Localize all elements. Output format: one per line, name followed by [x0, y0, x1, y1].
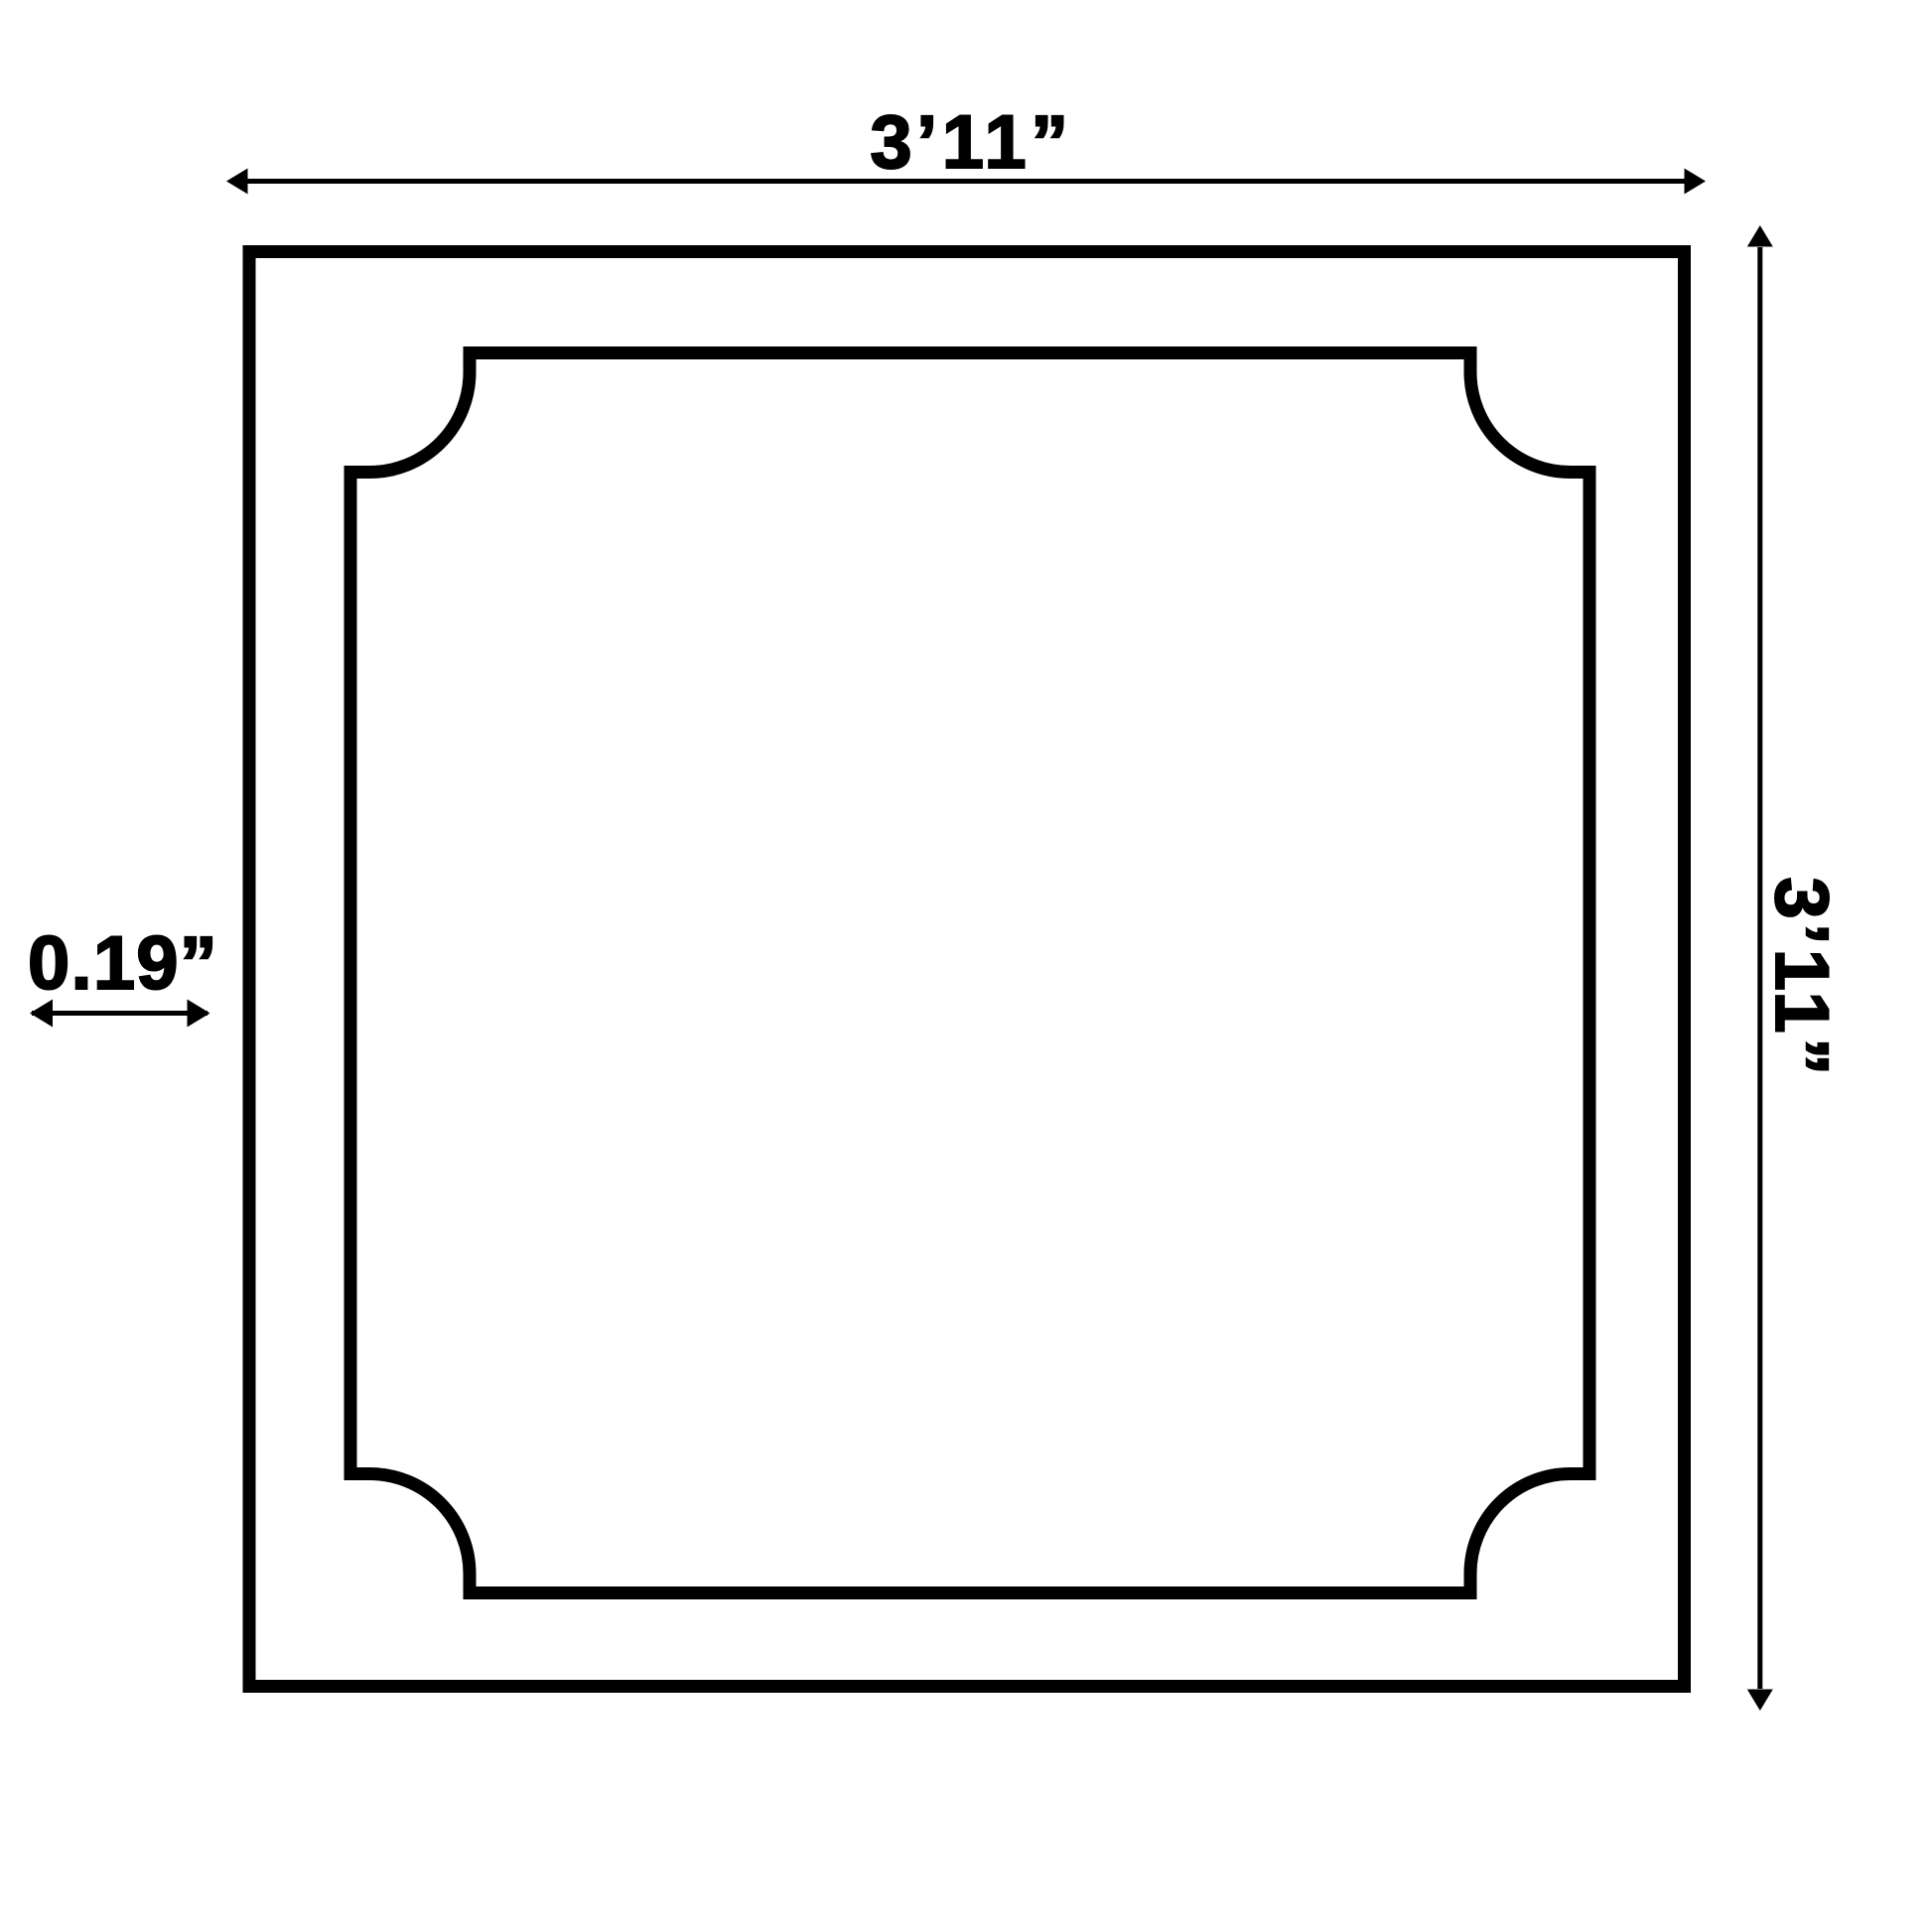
svg-text:0.19”: 0.19”	[28, 921, 218, 1006]
svg-text:3’11”: 3’11”	[870, 100, 1072, 185]
svg-text:3’11”: 3’11”	[1759, 877, 1844, 1079]
